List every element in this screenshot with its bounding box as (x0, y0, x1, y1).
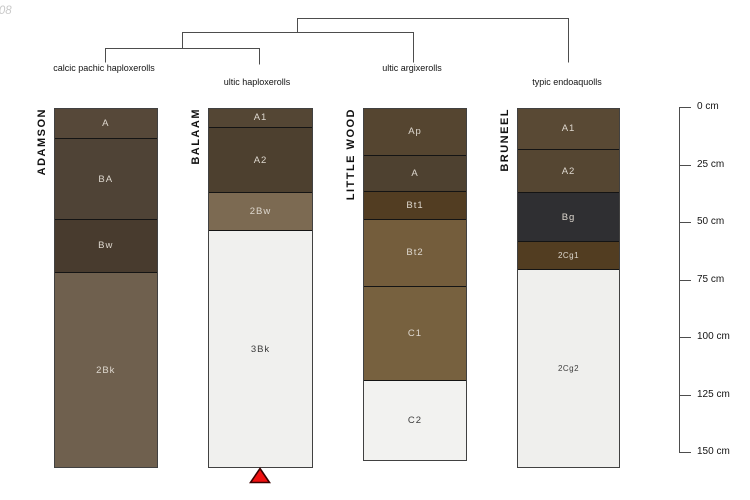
horizon-balaam-a2: A2 (209, 127, 312, 193)
horizon-label: C2 (408, 415, 422, 426)
horizon-label: A2 (562, 166, 576, 177)
dendrogram-lines (0, 0, 750, 100)
horizon-little-wood-c1: C1 (364, 286, 466, 380)
taxonomy-label-ultic-haploxerolls: ultic haploxerolls (224, 77, 291, 87)
horizon-label: Bw (98, 240, 113, 251)
depth-tick-100 (679, 337, 691, 338)
horizon-balaam-2bw: 2Bw (209, 192, 312, 230)
horizon-little-wood-bt2: Bt2 (364, 219, 466, 286)
horizon-label: A (102, 118, 109, 129)
horizon-label: Bt1 (406, 200, 423, 211)
soil-profile-figure: -08 calcic pachic haploxerollsultic hapl… (0, 0, 750, 500)
horizon-adamson-bw: Bw (55, 219, 158, 272)
horizon-adamson-2bk: 2Bk (55, 272, 158, 468)
horizon-label: A (411, 168, 418, 179)
depth-tick-label-125: 125 cm (697, 389, 730, 400)
depth-tick-label-0: 0 cm (697, 101, 719, 112)
horizon-label: C1 (408, 328, 422, 339)
horizon-label: A1 (254, 112, 268, 123)
depth-tick-label-150: 150 cm (697, 446, 730, 457)
horizon-bruneel-a1: A1 (518, 109, 619, 149)
profile-name-little-wood: LITTLE WOOD (345, 108, 357, 200)
horizon-label: 2Bw (250, 206, 271, 217)
horizon-little-wood-a: A (364, 155, 466, 192)
depth-tick-label-75: 75 cm (697, 274, 724, 285)
taxonomy-label-ultic-argixerolls: ultic argixerolls (382, 63, 442, 73)
horizon-label: 3Bk (251, 344, 270, 355)
horizon-label: Bt2 (406, 247, 423, 258)
depth-tick-125 (679, 395, 691, 396)
taxonomy-label-calcic-pachic-haploxerolls: calcic pachic haploxerolls (53, 63, 155, 73)
depth-tick-label-25: 25 cm (697, 159, 724, 170)
horizon-label: BA (98, 174, 113, 185)
horizon-bruneel-2cg2: 2Cg2 (518, 269, 619, 467)
horizon-label: 2Cg2 (558, 364, 579, 373)
dendrogram-branch-3 (298, 19, 569, 63)
horizon-label: 2Cg1 (558, 251, 579, 260)
dendrogram-branch-2 (183, 33, 414, 63)
profile-column-balaam: A1A22Bw3Bk (208, 108, 313, 469)
horizon-adamson-ba: BA (55, 138, 158, 219)
depth-tick-25 (679, 165, 691, 166)
profile-name-adamson: ADAMSON (36, 108, 48, 175)
depth-tick-50 (679, 222, 691, 223)
horizon-little-wood-ap: Ap (364, 109, 466, 155)
depth-tick-0 (679, 107, 691, 108)
depth-tick-150 (679, 452, 691, 453)
depth-tick-label-50: 50 cm (697, 216, 724, 227)
horizon-label: 2Bk (96, 365, 115, 376)
horizon-label: A1 (562, 123, 576, 134)
horizon-little-wood-c2: C2 (364, 380, 466, 461)
horizon-adamson-a: A (55, 109, 158, 139)
horizon-bruneel-a2: A2 (518, 149, 619, 193)
depth-tick-label-100: 100 cm (697, 331, 730, 342)
horizon-label: Ap (408, 126, 422, 137)
profile-name-bruneel: BRUNEEL (499, 108, 511, 172)
profile-column-adamson: ABABw2Bk (54, 108, 159, 469)
horizon-balaam-3bk: 3Bk (209, 230, 312, 467)
horizon-bruneel-2cg1: 2Cg1 (518, 241, 619, 270)
red-triangle-marker (249, 467, 271, 484)
horizon-balaam-a1: A1 (209, 109, 312, 127)
depth-tick-75 (679, 280, 691, 281)
horizon-label: Bg (562, 212, 576, 223)
taxonomy-label-typic-endoaquolls: typic endoaquolls (532, 77, 602, 87)
profile-column-bruneel: A1A2Bg2Cg12Cg2 (517, 108, 620, 469)
horizon-bruneel-bg: Bg (518, 192, 619, 240)
profile-name-balaam: BALAAM (190, 108, 202, 165)
horizon-label: A2 (254, 155, 268, 166)
profile-column-little-wood: ApABt1Bt2C1C2 (363, 108, 467, 462)
horizon-little-wood-bt1: Bt1 (364, 191, 466, 219)
